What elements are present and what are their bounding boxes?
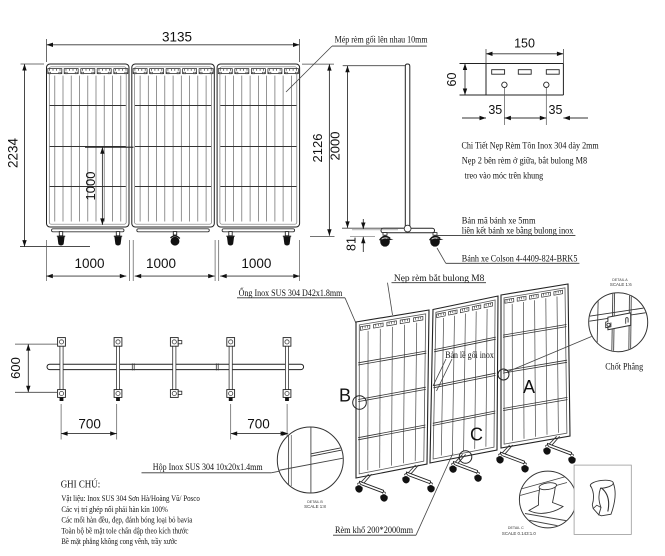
svg-text:Vật liệu: Inox SUS 304 Sơn Hà/: Vật liệu: Inox SUS 304 Sơn Hà/Hoàng Vũ/ … xyxy=(61,494,199,503)
svg-text:1000: 1000 xyxy=(83,172,98,201)
svg-text:B: B xyxy=(339,386,351,406)
svg-text:2000: 2000 xyxy=(328,132,343,161)
svg-text:Chi Tiết Nẹp Rèm Tôn Inox 304: Chi Tiết Nẹp Rèm Tôn Inox 304 dày 2mm xyxy=(462,141,600,152)
svg-text:35: 35 xyxy=(488,103,502,117)
svg-text:150: 150 xyxy=(514,37,535,51)
svg-text:2126: 2126 xyxy=(310,134,325,163)
svg-text:A: A xyxy=(523,377,535,397)
svg-text:Hộp Inox SUS 304 10x20x1.4mm: Hộp Inox SUS 304 10x20x1.4mm xyxy=(153,463,263,473)
svg-text:Mép rèm gối lên nhau 10mm: Mép rèm gối lên nhau 10mm xyxy=(335,34,429,45)
svg-text:SCALE 1:6: SCALE 1:6 xyxy=(610,282,632,287)
svg-text:1000: 1000 xyxy=(146,256,176,271)
svg-text:Nẹp 2 bên rèm ở giữa, bắt bulo: Nẹp 2 bên rèm ở giữa, bắt bulong M8 xyxy=(462,155,588,166)
svg-text:SCALE 1:8: SCALE 1:8 xyxy=(304,504,326,509)
svg-text:Các vị trí ghép nối phải hàn k: Các vị trí ghép nối phải hàn kín 100% xyxy=(61,505,168,514)
svg-text:Toàn bộ bề mặt tole chấn dập t: Toàn bộ bề mặt tole chấn dập theo kích t… xyxy=(61,527,188,536)
svg-text:DETAIL C: DETAIL C xyxy=(508,526,524,530)
svg-text:Chốt Phẳng: Chốt Phẳng xyxy=(605,362,643,373)
svg-text:SCALE 0.143:1.0: SCALE 0.143:1.0 xyxy=(502,531,536,536)
svg-text:Bản lề gối inox: Bản lề gối inox xyxy=(445,350,494,361)
svg-text:1000: 1000 xyxy=(241,256,271,271)
svg-text:700: 700 xyxy=(78,417,101,432)
svg-text:35: 35 xyxy=(549,103,563,117)
svg-text:Nẹp rèm bắt bulong M8: Nẹp rèm bắt bulong M8 xyxy=(394,273,485,284)
svg-text:Bản mã bánh xe 5mm: Bản mã bánh xe 5mm xyxy=(462,217,536,227)
svg-text:60: 60 xyxy=(445,73,459,87)
svg-text:2234: 2234 xyxy=(6,137,21,168)
svg-text:Các mối hàn đều, đẹp, đánh bón: Các mối hàn đều, đẹp, đánh bóng loại bỏ … xyxy=(61,516,192,525)
svg-text:treo vào móc trên khung: treo vào móc trên khung xyxy=(465,171,544,181)
svg-text:Bề mặt phẳng không cong vênh,: Bề mặt phẳng không cong vênh, trầy xước xyxy=(61,537,177,546)
svg-text:1000: 1000 xyxy=(74,256,104,271)
svg-text:3135: 3135 xyxy=(162,30,192,45)
svg-text:600: 600 xyxy=(8,357,23,379)
svg-text:C: C xyxy=(470,425,483,445)
svg-text:700: 700 xyxy=(247,417,270,432)
svg-text:GHI CHÚ:: GHI CHÚ: xyxy=(61,479,101,491)
svg-text:Rèm khổ 200*2000mm: Rèm khổ 200*2000mm xyxy=(335,525,414,536)
svg-text:81: 81 xyxy=(345,237,359,251)
